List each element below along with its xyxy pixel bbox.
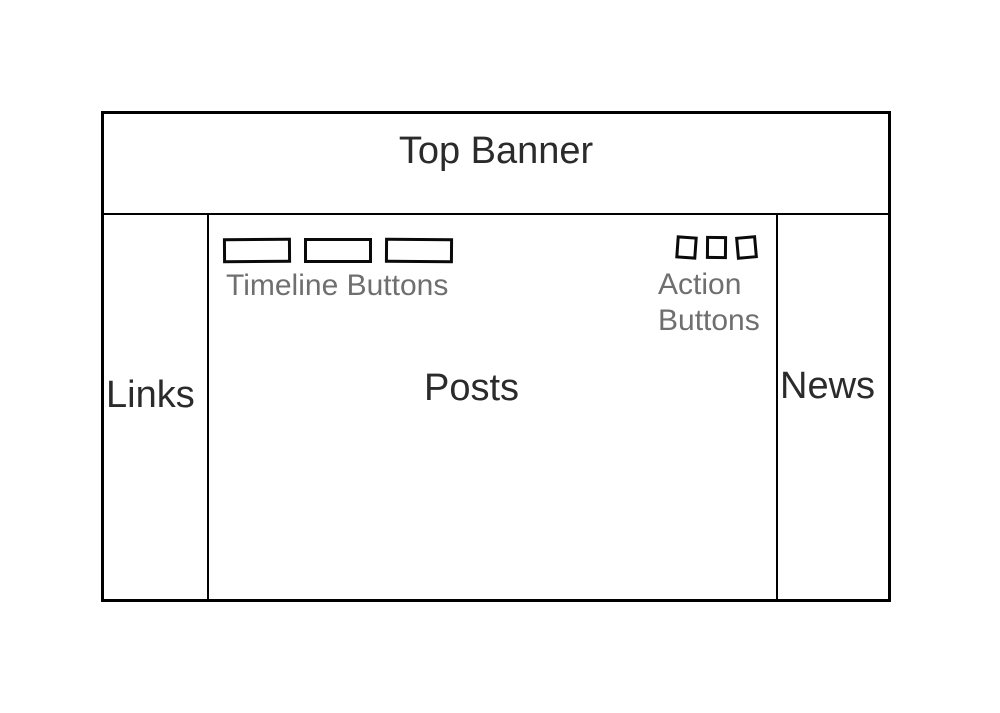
top-banner-label: Top Banner (104, 132, 888, 170)
page-frame: Top Banner Links Timeline Buttons Acti (101, 111, 891, 602)
action-buttons-label-line2: Buttons (658, 306, 760, 336)
action-button-3[interactable] (735, 235, 758, 260)
timeline-buttons-label: Timeline Buttons (226, 271, 448, 301)
news-label: News (780, 367, 875, 405)
timeline-button-3[interactable] (385, 238, 453, 263)
timeline-button-1[interactable] (223, 238, 291, 263)
posts-region: Timeline Buttons Action Buttons Posts (209, 215, 776, 599)
page-body: Links Timeline Buttons Action Buttons Po… (104, 215, 888, 599)
top-banner-region: Top Banner (104, 114, 888, 215)
action-button-2[interactable] (706, 236, 727, 259)
action-buttons-label-line1: Action (658, 270, 741, 300)
action-buttons-group (676, 236, 757, 259)
action-button-1[interactable] (675, 235, 698, 259)
posts-label: Posts (424, 369, 519, 407)
news-sidebar-region: News (776, 215, 888, 599)
links-sidebar-region: Links (104, 215, 209, 599)
timeline-button-2[interactable] (304, 238, 372, 263)
wireframe-canvas: Top Banner Links Timeline Buttons Acti (0, 0, 1000, 713)
links-label: Links (106, 376, 195, 414)
timeline-buttons-group (223, 238, 453, 263)
